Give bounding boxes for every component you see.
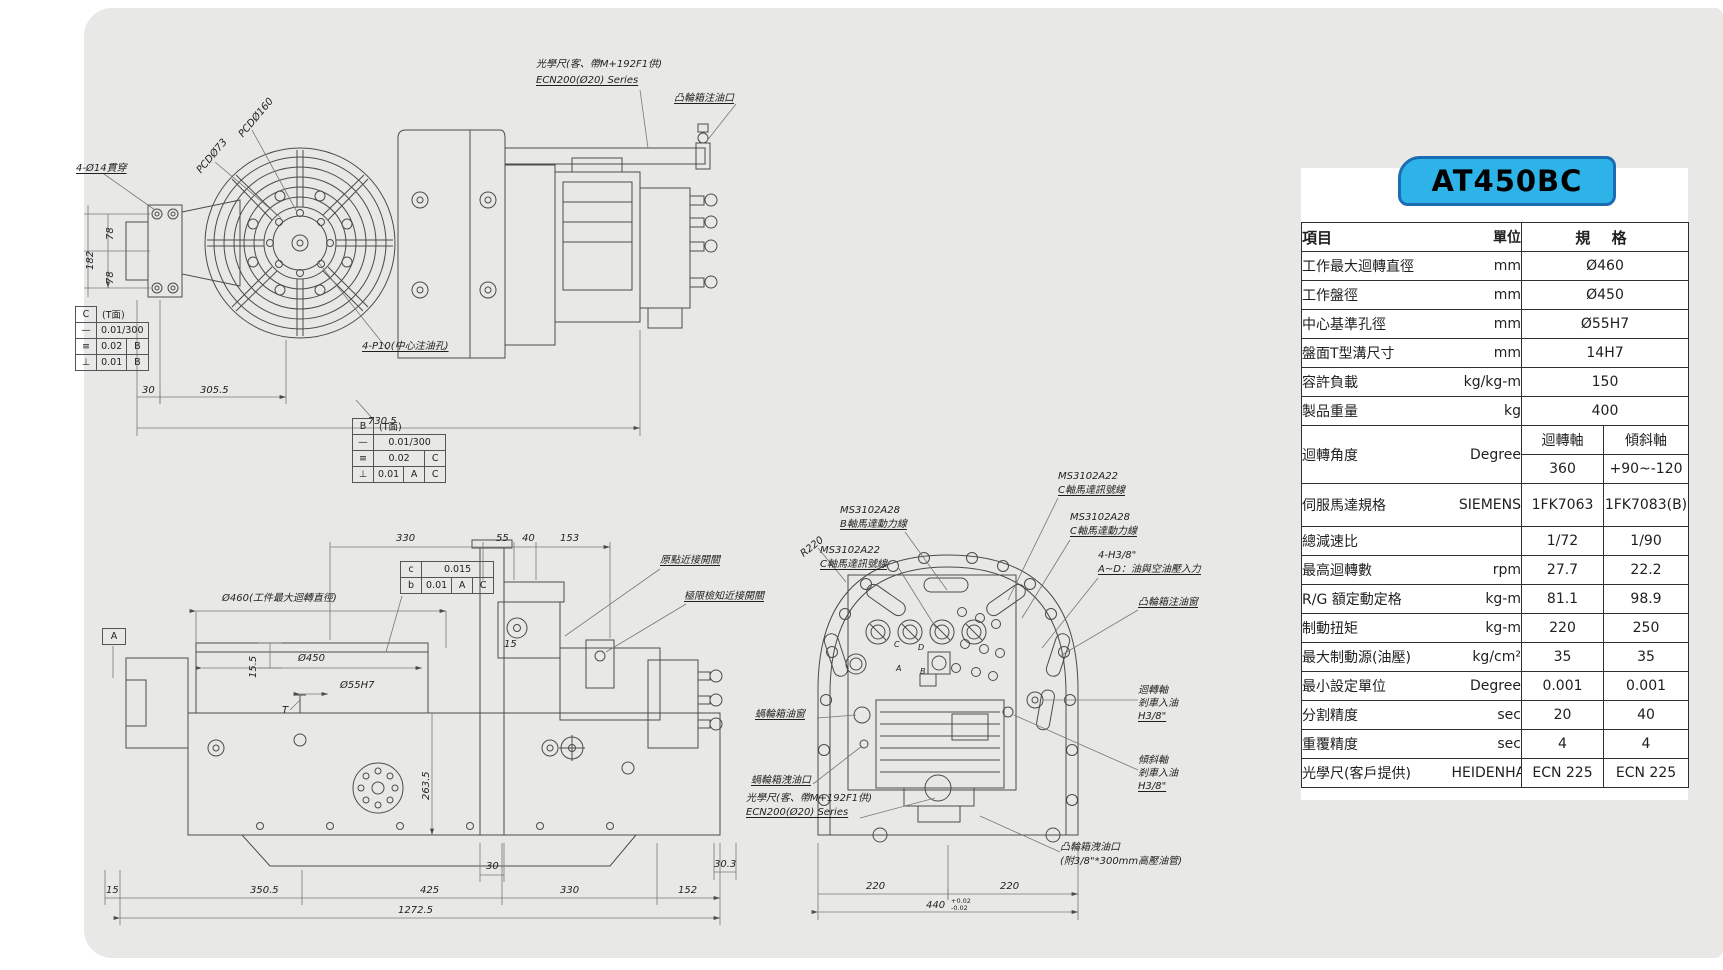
rv-ms3-wire-label: C軸馬達訊號線 bbox=[1058, 484, 1125, 497]
sv-dim-12725: 1272.5 bbox=[398, 904, 433, 917]
spec-table: 項目 單位 規 格 工作最大迴轉直徑mmØ460 工作盤徑mmØ450 中心基準… bbox=[1301, 222, 1689, 788]
table-row: 重覆精度sec44 bbox=[1302, 730, 1689, 759]
fv-holes-label: 4-Ø14貫穿 bbox=[76, 162, 127, 175]
model-badge: AT450BC bbox=[1398, 156, 1616, 206]
sv-dia450-label: Ø450 bbox=[298, 652, 325, 665]
rv-port-d-label: D bbox=[918, 643, 924, 653]
sv-dim-425: 425 bbox=[420, 884, 439, 897]
rv-cam-drain-label-1: 凸輪箱洩油口 bbox=[1060, 841, 1120, 854]
table-row: 製品重量kg400 bbox=[1302, 397, 1689, 426]
rv-rotary-brake-label: 剎車入油 bbox=[1138, 697, 1178, 710]
rv-rotary-port-label: H3/8" bbox=[1138, 710, 1166, 723]
rv-ms1-connector-label: MS3102A28 bbox=[840, 504, 900, 517]
spec-panel: AT450BC 項目 單位 規 格 工作最大迴轉直徑mmØ460 工作盤徑mmØ… bbox=[1301, 168, 1688, 800]
spec-header-row: 項目 單位 規 格 bbox=[1302, 223, 1689, 252]
sv-dim-330b: 330 bbox=[560, 884, 579, 897]
table-row: 最小設定單位Degree0.0010.001 bbox=[1302, 672, 1689, 701]
fv-dim-78b: 78 bbox=[104, 271, 117, 284]
fv-dim-182: 182 bbox=[84, 251, 97, 270]
rv-cam-fill-window-label: 凸輪箱注油窗 bbox=[1138, 596, 1198, 609]
rv-h38-label: 4-H3/8" bbox=[1098, 549, 1136, 562]
fv-dim-78a: 78 bbox=[104, 227, 117, 240]
sv-dim-303: 30.3 bbox=[714, 858, 736, 871]
sv-origin-switch-label: 原點近接開關 bbox=[660, 554, 720, 567]
sv-limit-switch-label: 極限檢知近接開關 bbox=[684, 590, 764, 603]
rv-worm-window-label: 蝸輪箱油窗 bbox=[755, 708, 805, 721]
table-row: 最高迴轉數rpm27.722.2 bbox=[1302, 556, 1689, 585]
rv-cam-drain-label-2: (附3/8"*300mm高壓油管) bbox=[1060, 855, 1182, 868]
rv-port-c-label: C bbox=[894, 640, 900, 650]
fv-scale-label-1: 光學尺(客、帶M+192F1供) bbox=[536, 58, 662, 71]
sv-dim-153: 153 bbox=[560, 532, 579, 545]
table-row: 容許負載kg/kg-m150 bbox=[1302, 368, 1689, 397]
rv-tilt-axis-label: 傾斜軸 bbox=[1138, 754, 1168, 767]
rv-ms4-connector-label: MS3102A28 bbox=[1070, 511, 1130, 524]
table-row-rotation-angle: 迴轉角度 Degree 迴轉軸傾斜軸 bbox=[1302, 426, 1689, 455]
sv-dia55-label: Ø55H7 bbox=[340, 679, 374, 692]
table-row: 盤面T型溝尺寸mm14H7 bbox=[1302, 339, 1689, 368]
sv-dim-15: 15 bbox=[504, 638, 517, 651]
table-row: 工作最大迴轉直徑mmØ460 bbox=[1302, 252, 1689, 281]
rv-dim-220a: 220 bbox=[866, 880, 885, 893]
sv-dim-30: 30 bbox=[486, 860, 499, 873]
table-row: 工作盤徑mmØ450 bbox=[1302, 281, 1689, 310]
rv-port-a-label: A bbox=[896, 664, 901, 674]
datum-frame-b: B(T面) —0.01/300 ≡0.02C ⊥0.01AC bbox=[352, 418, 446, 483]
fv-p10-label: 4-P10(中心注油孔) bbox=[362, 340, 449, 353]
rv-tilt-brake-label: 剎車入油 bbox=[1138, 767, 1178, 780]
sv-dim-152: 152 bbox=[678, 884, 697, 897]
rv-ms4-wire-label: C軸馬達動力線 bbox=[1070, 525, 1137, 538]
table-row: 制動扭矩kg-m220250 bbox=[1302, 614, 1689, 643]
sv-dim-155: 15.5 bbox=[247, 656, 260, 678]
sv-dim-40: 40 bbox=[522, 532, 535, 545]
rv-ms2-wire-label: C軸馬達訊號線 bbox=[820, 558, 887, 571]
sv-dim-3505: 350.5 bbox=[250, 884, 279, 897]
sv-t-label: T bbox=[282, 704, 288, 717]
sv-dim-330t: 330 bbox=[396, 532, 415, 545]
rv-dim-440-tolerance: +0.02-0.02 bbox=[951, 898, 971, 912]
table-row: 伺服馬達規格SIEMENS1FK70631FK7083(B) bbox=[1302, 484, 1689, 527]
rv-dim-220b: 220 bbox=[1000, 880, 1019, 893]
rv-scale-label-1: 光學尺(客、帶M+192F1供) bbox=[746, 792, 872, 805]
sv-dim-2635: 263.5 bbox=[420, 771, 433, 800]
fv-dim-305: 305.5 bbox=[200, 384, 229, 397]
side-view-dimensions bbox=[105, 542, 736, 925]
rv-rotary-axis-label: 迴轉軸 bbox=[1138, 684, 1168, 697]
rv-tilt-port-label: H3/8" bbox=[1138, 780, 1166, 793]
datum-frame-c: C(T面) —0.01/300 ≡0.02B ⊥0.01B bbox=[75, 306, 149, 371]
rv-worm-drain-label: 蝸輪箱洩油口 bbox=[751, 774, 811, 787]
table-row: 分割精度sec2040 bbox=[1302, 701, 1689, 730]
rv-port-b-label: B bbox=[920, 667, 926, 677]
table-row: 總減速比1/721/90 bbox=[1302, 527, 1689, 556]
sv-dim-55: 55 bbox=[496, 532, 509, 545]
table-row: 中心基準孔徑mmØ55H7 bbox=[1302, 310, 1689, 339]
table-row: 最大制動源(油壓)kg/cm²3535 bbox=[1302, 643, 1689, 672]
rv-ms2-connector-label: MS3102A22 bbox=[820, 544, 880, 557]
rv-ms1-wire-label: B軸馬達動力線 bbox=[840, 518, 907, 531]
rv-ms3-connector-label: MS3102A22 bbox=[1058, 470, 1118, 483]
rv-scale-label-2: ECN200(Ø20) Series bbox=[746, 806, 848, 819]
sv-dia460-label: Ø460(工件最大迴轉直徑) bbox=[222, 592, 337, 605]
table-row: R/G 額定動定格kg-m81.198.9 bbox=[1302, 585, 1689, 614]
catalog-page: { "model": "AT450BC", "colors": {"badge_… bbox=[0, 0, 1723, 970]
datum-frame-a: A bbox=[102, 628, 126, 645]
sv-dim-b15: 15 bbox=[106, 884, 119, 897]
fv-cam-fill-label: 凸輪箱注油口 bbox=[674, 92, 734, 105]
fv-dim-30: 30 bbox=[142, 384, 155, 397]
rv-h38-ports-label: A~D：油與空油壓入力 bbox=[1098, 563, 1201, 576]
rv-dim-440: 440 bbox=[926, 899, 945, 912]
table-row: 光學尺(客戶提供)HEIDENHAINECN 225ECN 225 bbox=[1302, 759, 1689, 788]
sv-tolerance-box: c0.015 b0.01AC bbox=[400, 561, 494, 594]
fv-scale-label-2: ECN200(Ø20) Series bbox=[536, 74, 638, 87]
